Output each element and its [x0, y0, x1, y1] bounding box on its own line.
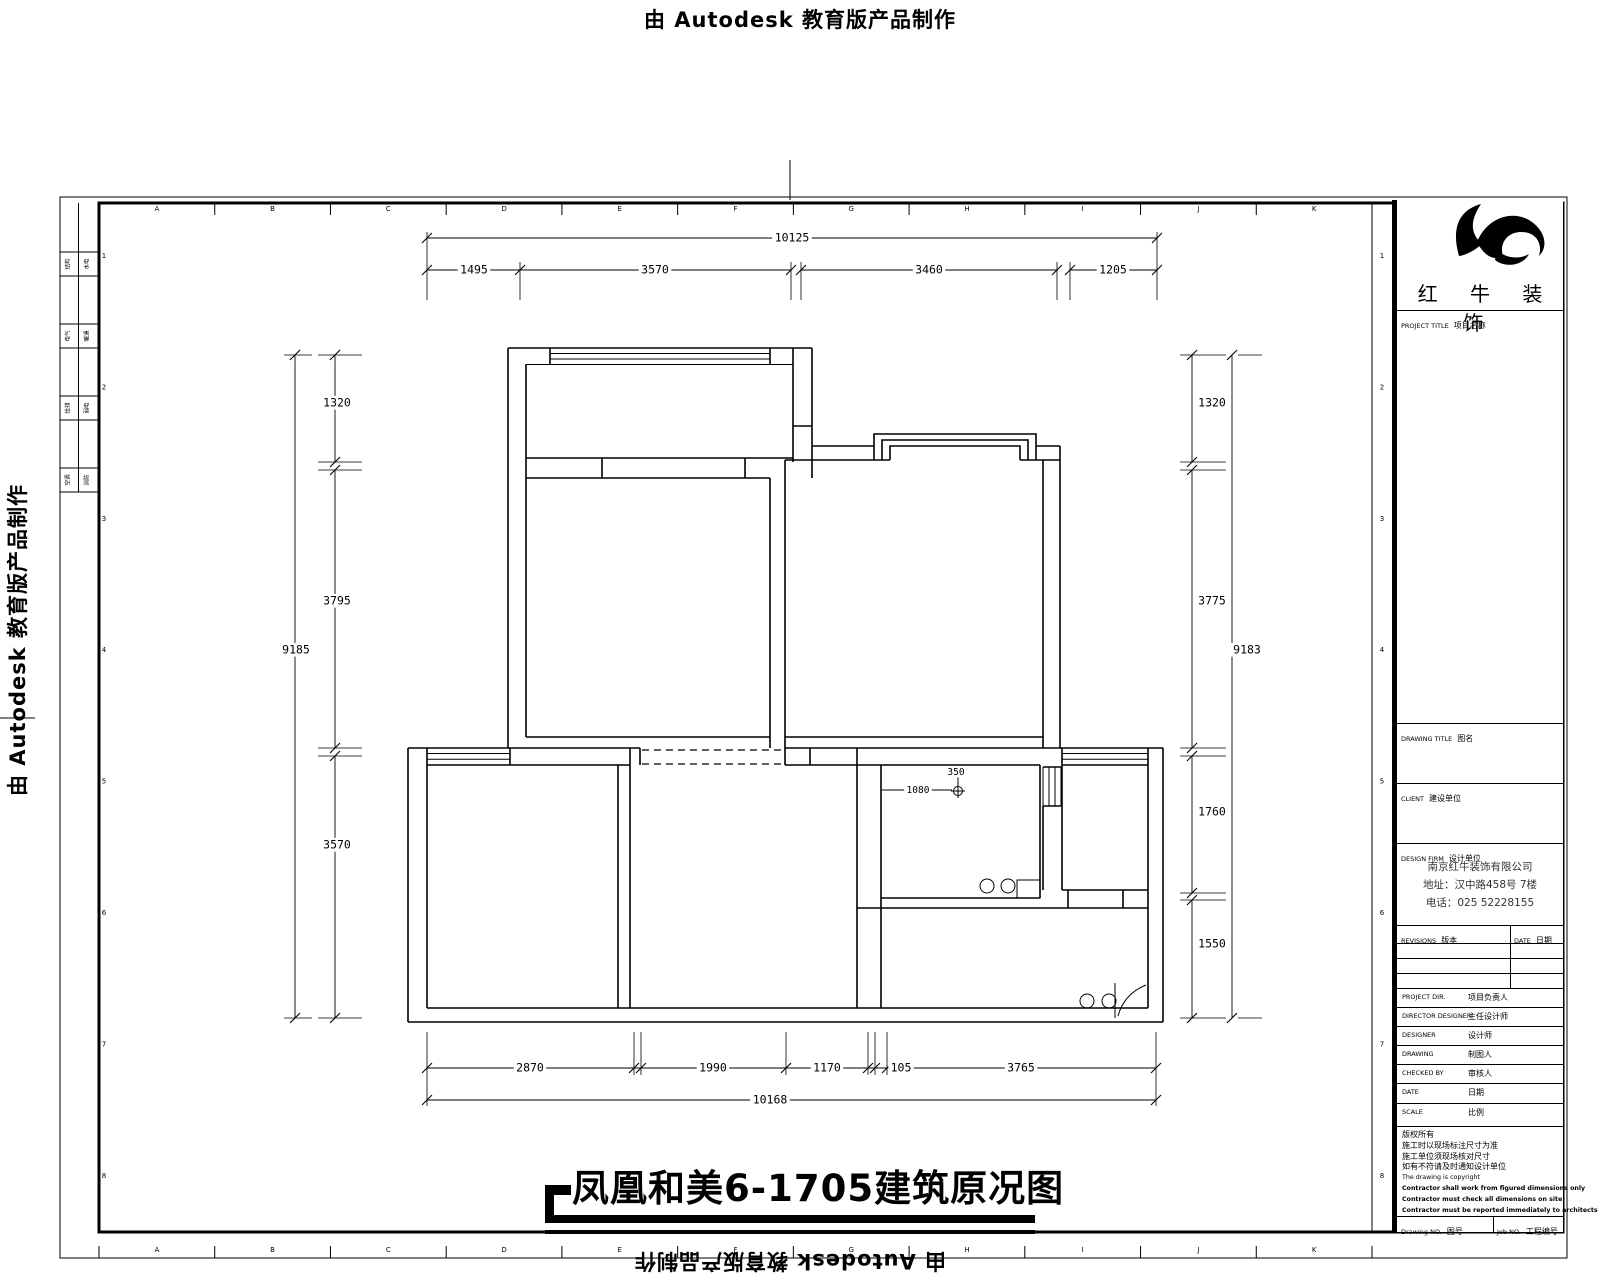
revisions-column-divider [1510, 925, 1511, 988]
dim-label: 1550 [1198, 937, 1226, 951]
legend-cell-label: 弱电 [83, 402, 91, 414]
row-number-right: 1 [1380, 252, 1384, 260]
drawing-title-cell: DRAWING TITLE图名 [1397, 723, 1563, 784]
signature-row: DATE日期 [1397, 1083, 1563, 1104]
removed-wall-dashed [642, 750, 783, 764]
dim-label: 3765 [1007, 1061, 1035, 1075]
title-bar [545, 1215, 1035, 1223]
grid-letter-top: K [1312, 205, 1317, 213]
signature-row: DIRECTOR DESIGNER主任设计师 [1397, 1007, 1563, 1027]
company-info-line: 电话：025 52228155 [1397, 894, 1563, 912]
grid-letter-bottom: H [964, 1246, 969, 1254]
note-line: 施工时以现场标注尺寸为准 [1402, 1141, 1563, 1152]
dim-label: 1320 [1198, 396, 1226, 410]
row-number-right: 7 [1380, 1040, 1384, 1048]
sheet-inner-border [99, 203, 1563, 1232]
dimensions [284, 232, 1262, 1106]
revision-row [1397, 973, 1563, 989]
grid-letter-bottom: D [501, 1246, 506, 1254]
basin-icon [1001, 879, 1015, 893]
grid-letter-top: H [964, 205, 969, 213]
revision-row [1397, 943, 1563, 959]
window-glazing-lines [427, 354, 1148, 807]
basin-icon [1080, 994, 1094, 1008]
revision-row [1397, 958, 1563, 974]
grid-letter-top: G [849, 205, 854, 213]
legend-cell-label: 水电 [83, 258, 91, 270]
grid-letter-top: E [618, 205, 622, 213]
grid-letter-top: C [386, 205, 391, 213]
note-line-bold: Contractor must check all dimensions on … [1402, 1195, 1563, 1206]
row-number-left: 1 [102, 252, 106, 260]
legend-cell-label: 消防 [83, 474, 91, 486]
floor-plan [408, 348, 1163, 1022]
dim-label: 9185 [282, 643, 310, 657]
signature-row-value: 审核人 [1468, 1068, 1492, 1079]
signature-row-label: PROJECT DIR. [1402, 993, 1445, 1001]
legend-cell-label: 电气 [64, 330, 72, 342]
design-firm-cell: DESIGN FIRM设计单位 南京红牛装饰有限公司地址：汉中路458号 7楼电… [1397, 843, 1563, 926]
client-label-cn: 建设单位 [1429, 794, 1461, 803]
signature-row: CHECKED BY审核人 [1397, 1064, 1563, 1084]
signature-row-label: DIRECTOR DESIGNER [1402, 1012, 1471, 1020]
row-number-left: 2 [102, 383, 106, 391]
dim-label: 1990 [699, 1061, 727, 1075]
signature-row: DRAWING制图人 [1397, 1045, 1563, 1065]
company-info-line: 地址：汉中路458号 7楼 [1397, 876, 1563, 894]
row-number-right: 4 [1380, 646, 1385, 654]
row-number-left: 7 [102, 1040, 106, 1048]
note-line: 施工单位须现场核对尺寸 [1402, 1152, 1563, 1163]
legend-cell-label: 暖通 [83, 330, 91, 342]
company-info: 南京红牛装饰有限公司地址：汉中路458号 7楼电话：025 52228155 [1397, 858, 1563, 912]
grid-letter-bottom: A [154, 1246, 159, 1254]
job-no-label-cn: 工程编号 [1526, 1227, 1558, 1236]
project-title-label: PROJECT TITLE [1401, 322, 1449, 330]
dim-label: 10125 [775, 231, 810, 245]
note-line-bold: Contractor shall work from figured dimen… [1402, 1184, 1563, 1195]
floor-plan-canvas: AABBCCDDEEFFGGHHIIJJKK1122334455667788 结… [0, 0, 1600, 1280]
dim-label: 3795 [323, 594, 351, 608]
grid-letter-bottom: E [618, 1246, 622, 1254]
plot-center-marks [0, 160, 790, 718]
dim-label: 1495 [460, 263, 488, 277]
dim-label: 1760 [1198, 805, 1226, 819]
legend-cell-label: 结构 [64, 258, 72, 270]
row-number-right: 3 [1380, 515, 1384, 523]
row-number-right: 2 [1380, 383, 1384, 391]
notes-cell: 版权所有施工时以现场标注尺寸为准施工单位须现场核对尺寸如有不符请及时通知设计单位… [1397, 1126, 1563, 1220]
dim-label: 1320 [323, 396, 351, 410]
logo-cell: 红 牛 装 饰 [1397, 200, 1563, 310]
project-title-cell: PROJECT TITLE项目名称 [1397, 310, 1563, 724]
dim-label: 3570 [641, 263, 669, 277]
counter-corner [1115, 983, 1146, 1018]
grid-letter-top: J [1196, 205, 1199, 213]
signature-row-label: CHECKED BY [1402, 1069, 1444, 1077]
title-block: 红 牛 装 饰 PROJECT TITLE项目名称 DRAWING TITLE图… [1392, 200, 1563, 1232]
drawing-title-label-cn: 图名 [1457, 734, 1473, 743]
signature-row: DESIGNER设计师 [1397, 1026, 1563, 1046]
extension-lines [284, 232, 1262, 1106]
drawing-title: 凤凰和美6-1705建筑原况图 [572, 1158, 1064, 1212]
grid-letter-bottom: C [386, 1246, 391, 1254]
row-number-right: 5 [1380, 778, 1384, 786]
dim-label: 3460 [915, 263, 943, 277]
legend-strip: 结构水电电气暖通给排弱电空调消防 [64, 258, 91, 486]
signature-row-label: DATE [1402, 1088, 1419, 1096]
grid-letter-bottom: B [270, 1246, 275, 1254]
legend-cell-label: 给排 [64, 402, 72, 414]
signature-row-label: DRAWING [1402, 1050, 1434, 1058]
signature-row-value: 项目负责人 [1468, 992, 1508, 1003]
note-line: 如有不符请及时通知设计单位 [1402, 1162, 1563, 1173]
row-number-left: 5 [102, 778, 106, 786]
signature-row-value: 日期 [1468, 1087, 1484, 1098]
company-info-line: 南京红牛装饰有限公司 [1397, 858, 1563, 876]
signature-row-label: DESIGNER [1402, 1031, 1436, 1039]
autodesk-stamp-top: 由 Autodesk 教育版产品制作 [0, 4, 1600, 34]
row-number-right: 8 [1380, 1172, 1384, 1180]
drawing-no-label-cn: 图号 [1447, 1227, 1463, 1236]
signature-row-value: 比例 [1468, 1107, 1484, 1118]
signature-row-value: 制图人 [1468, 1049, 1492, 1060]
row-number-right: 6 [1380, 909, 1385, 917]
row-number-left: 8 [102, 1172, 106, 1180]
sheet-outer-border [60, 197, 1567, 1258]
row-number-left: 3 [102, 515, 106, 523]
basin-icon [1102, 994, 1116, 1008]
drawing-title-label: DRAWING TITLE [1401, 735, 1452, 743]
revisions-header: REVISIONS版本 DATE日期 [1397, 925, 1563, 944]
grid-letter-top: B [270, 205, 275, 213]
dimension-lines [295, 238, 1232, 1100]
row-number-left: 6 [102, 909, 107, 917]
dim-label: 1170 [813, 1061, 841, 1075]
grid-letter-bottom: K [1312, 1246, 1317, 1254]
grid-letter-bottom: I [1082, 1246, 1084, 1254]
signature-row-label: SCALE [1402, 1108, 1423, 1116]
dim-label: 9183 [1233, 643, 1261, 657]
drawing-no-label: Drawing NO. [1401, 1228, 1442, 1236]
project-title-label-cn: 项目名称 [1454, 321, 1486, 330]
drawing-no-cell: Drawing NO.图号 Job NO.工程编号 [1397, 1216, 1563, 1233]
dim-label: 105 [891, 1061, 912, 1075]
client-cell: CLIENT建设单位 [1397, 783, 1563, 844]
signature-row-value: 主任设计师 [1468, 1011, 1508, 1022]
dim-label: 10168 [753, 1093, 788, 1107]
row-number-left: 4 [102, 646, 107, 654]
fixtures [882, 772, 1146, 1018]
dim-label: 1205 [1099, 263, 1127, 277]
dimension-ticks [290, 233, 1237, 1105]
autodesk-stamp-left: 由 Autodesk 教育版产品制作 [2, 484, 32, 796]
dim-label: 3570 [323, 838, 351, 852]
dim-label: 1080 [907, 785, 930, 796]
autodesk-stamp-bottom: 由 Autodesk 教育版产品制作 [634, 1247, 946, 1277]
grid-letter-top: F [733, 205, 737, 213]
walls [408, 348, 1163, 1022]
note-line-bold: Contractor must be reported immediately … [1402, 1206, 1563, 1217]
legend-strip-grid [60, 203, 99, 492]
basin-icon [980, 879, 994, 893]
dim-label: 2870 [516, 1061, 544, 1075]
signature-row-value: 设计师 [1468, 1030, 1492, 1041]
note-line: 版权所有 [1402, 1130, 1563, 1141]
legend-cell-label: 空调 [64, 474, 72, 486]
grid-letter-top: D [501, 205, 506, 213]
note-line: The drawing is copyright [1402, 1173, 1563, 1184]
signature-row: PROJECT DIR.项目负责人 [1397, 988, 1563, 1008]
signature-row: SCALE比例 [1397, 1103, 1563, 1127]
grid-letter-bottom: J [1196, 1246, 1199, 1254]
cabinet [1017, 880, 1040, 898]
redniu-logo-icon [1397, 200, 1563, 276]
dim-label: 3775 [1198, 594, 1226, 608]
job-no-label: Job NO. [1497, 1228, 1521, 1236]
grid-letter-top: A [154, 205, 159, 213]
bottom-column-divider [1493, 1216, 1494, 1232]
client-label: CLIENT [1401, 795, 1424, 803]
dim-label: 350 [947, 767, 964, 778]
grid-letter-top: I [1082, 205, 1084, 213]
